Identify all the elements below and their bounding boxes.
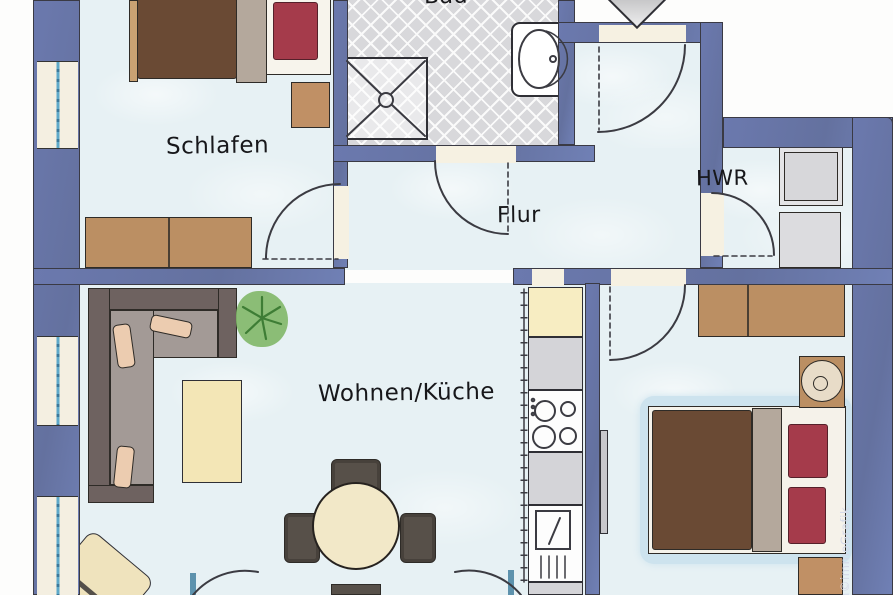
wall-bad-bottom <box>333 145 595 162</box>
room-label-schlafen: Schlafen <box>166 132 269 159</box>
kitchen-sink-unit <box>528 505 583 582</box>
washing-machine <box>779 147 843 206</box>
bed-1-blanket <box>137 0 237 79</box>
kitchen-counter-3 <box>528 582 583 595</box>
dryer <box>779 212 841 268</box>
sofa-armrest-right <box>218 288 237 358</box>
coffee-table <box>182 380 242 483</box>
window-left-1 <box>37 61 78 149</box>
room-label-hwr: HWR <box>696 166 749 191</box>
kitchen-counter-2 <box>528 452 583 505</box>
window-glass <box>56 62 59 148</box>
room-entry-floor <box>574 38 702 148</box>
nightstand-2 <box>798 557 843 595</box>
wall-main-right <box>513 268 893 285</box>
sofa-back-left <box>88 288 110 503</box>
bed-1-runner <box>236 0 267 83</box>
plant-icon <box>236 291 288 347</box>
bed-2-pillow-red-top <box>788 424 828 478</box>
dresser-divider <box>747 284 749 336</box>
door-gap-schlafen <box>334 186 349 259</box>
nightstand-1 <box>291 82 330 128</box>
watermark-text: n©immoGrafik <box>838 440 854 595</box>
wall-hwr-left <box>700 22 723 268</box>
shower <box>344 57 428 140</box>
balcony-frame-mark-left <box>190 573 196 595</box>
window-glass <box>56 337 59 425</box>
exterior-wall-left <box>33 0 80 595</box>
door-gap-bad <box>436 146 516 163</box>
exterior-wall-right <box>852 117 893 595</box>
window-left-3 <box>37 496 78 595</box>
room-label-bad: Bad <box>424 0 468 9</box>
room-label-flur: Flur <box>497 203 541 229</box>
kitchen-cabinet-yellow <box>528 287 583 337</box>
stove <box>528 390 583 452</box>
bed-2-runner <box>752 408 782 552</box>
window-left-2 <box>37 336 78 426</box>
stool-center <box>813 376 828 391</box>
dining-chair-right <box>400 513 436 563</box>
wardrobe-schlafen <box>85 217 252 268</box>
dresser-bedroom2 <box>698 283 845 337</box>
dining-chair-bottom <box>331 584 381 595</box>
room-label-wohnen-kueche: Wohnen/Küche <box>318 379 495 407</box>
balcony-frame-mark-right <box>508 570 514 595</box>
radiator <box>600 430 608 534</box>
wall-kitchen-bedroom <box>585 283 600 595</box>
wall-schlafen-bad <box>333 0 348 268</box>
wardrobe-divider <box>168 218 170 267</box>
washing-machine-inner <box>784 152 838 201</box>
door-gap-bedroom2 <box>611 269 686 286</box>
window-glass <box>56 497 59 595</box>
bed-2-blanket <box>652 410 752 550</box>
door-gap-entry <box>599 25 686 42</box>
bed-2-pillow-red-bottom <box>788 487 826 544</box>
bed-1-pillow-red <box>273 2 318 60</box>
wall-main-left <box>33 268 345 285</box>
dining-table <box>312 482 400 570</box>
kitchen-counter-1 <box>528 337 583 390</box>
sofa-back-top <box>88 288 237 310</box>
door-gap-hwr <box>701 193 724 256</box>
floorplan-canvas: Bad Schlafen Flur HWR Wohnen/Küche <box>0 0 893 595</box>
pass-gap-kitchen <box>532 269 564 286</box>
